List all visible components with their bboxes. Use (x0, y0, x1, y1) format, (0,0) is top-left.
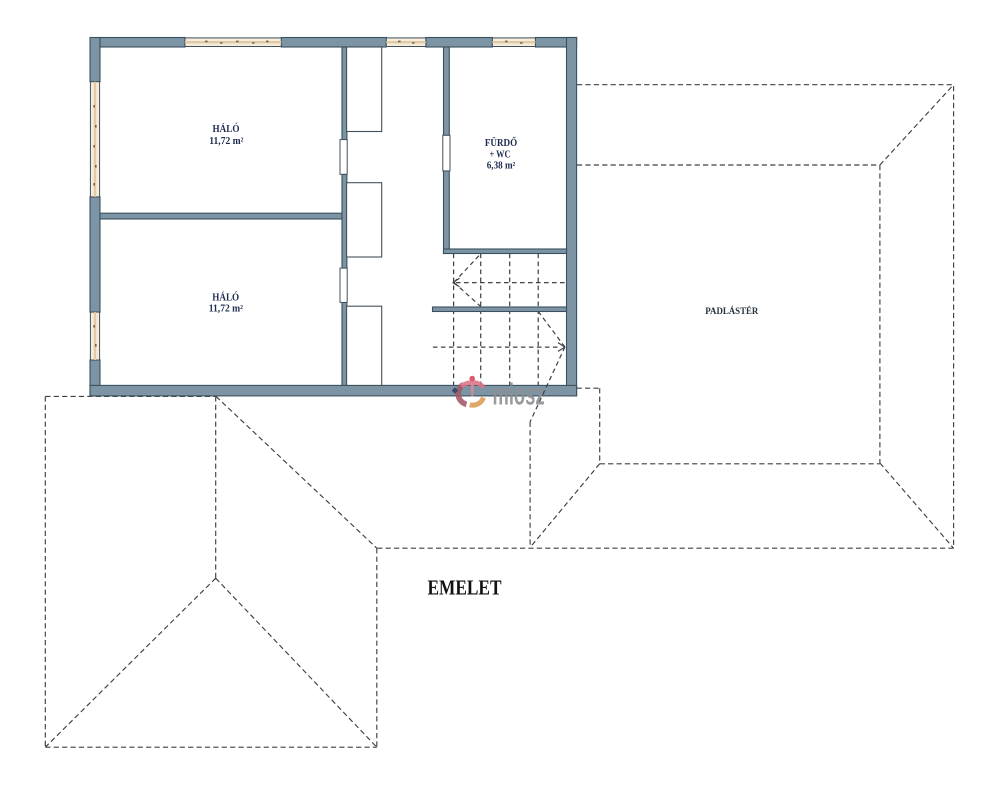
svg-text:11,72 m²: 11,72 m² (209, 304, 243, 315)
svg-text:11,72 m²: 11,72 m² (209, 136, 243, 147)
svg-text:EMELET: EMELET (428, 576, 502, 600)
svg-text:PADLÁSTÉR: PADLÁSTÉR (705, 305, 758, 317)
svg-text:HÁLÓ: HÁLÓ (213, 123, 240, 135)
svg-text:HÁLÓ: HÁLÓ (212, 291, 239, 303)
svg-text:6,38 m²: 6,38 m² (487, 161, 516, 172)
svg-text:FÜRDŐ: FÜRDŐ (485, 136, 517, 149)
svg-text:miosz: miosz (493, 376, 545, 411)
svg-text:+ WC: + WC (490, 149, 511, 160)
